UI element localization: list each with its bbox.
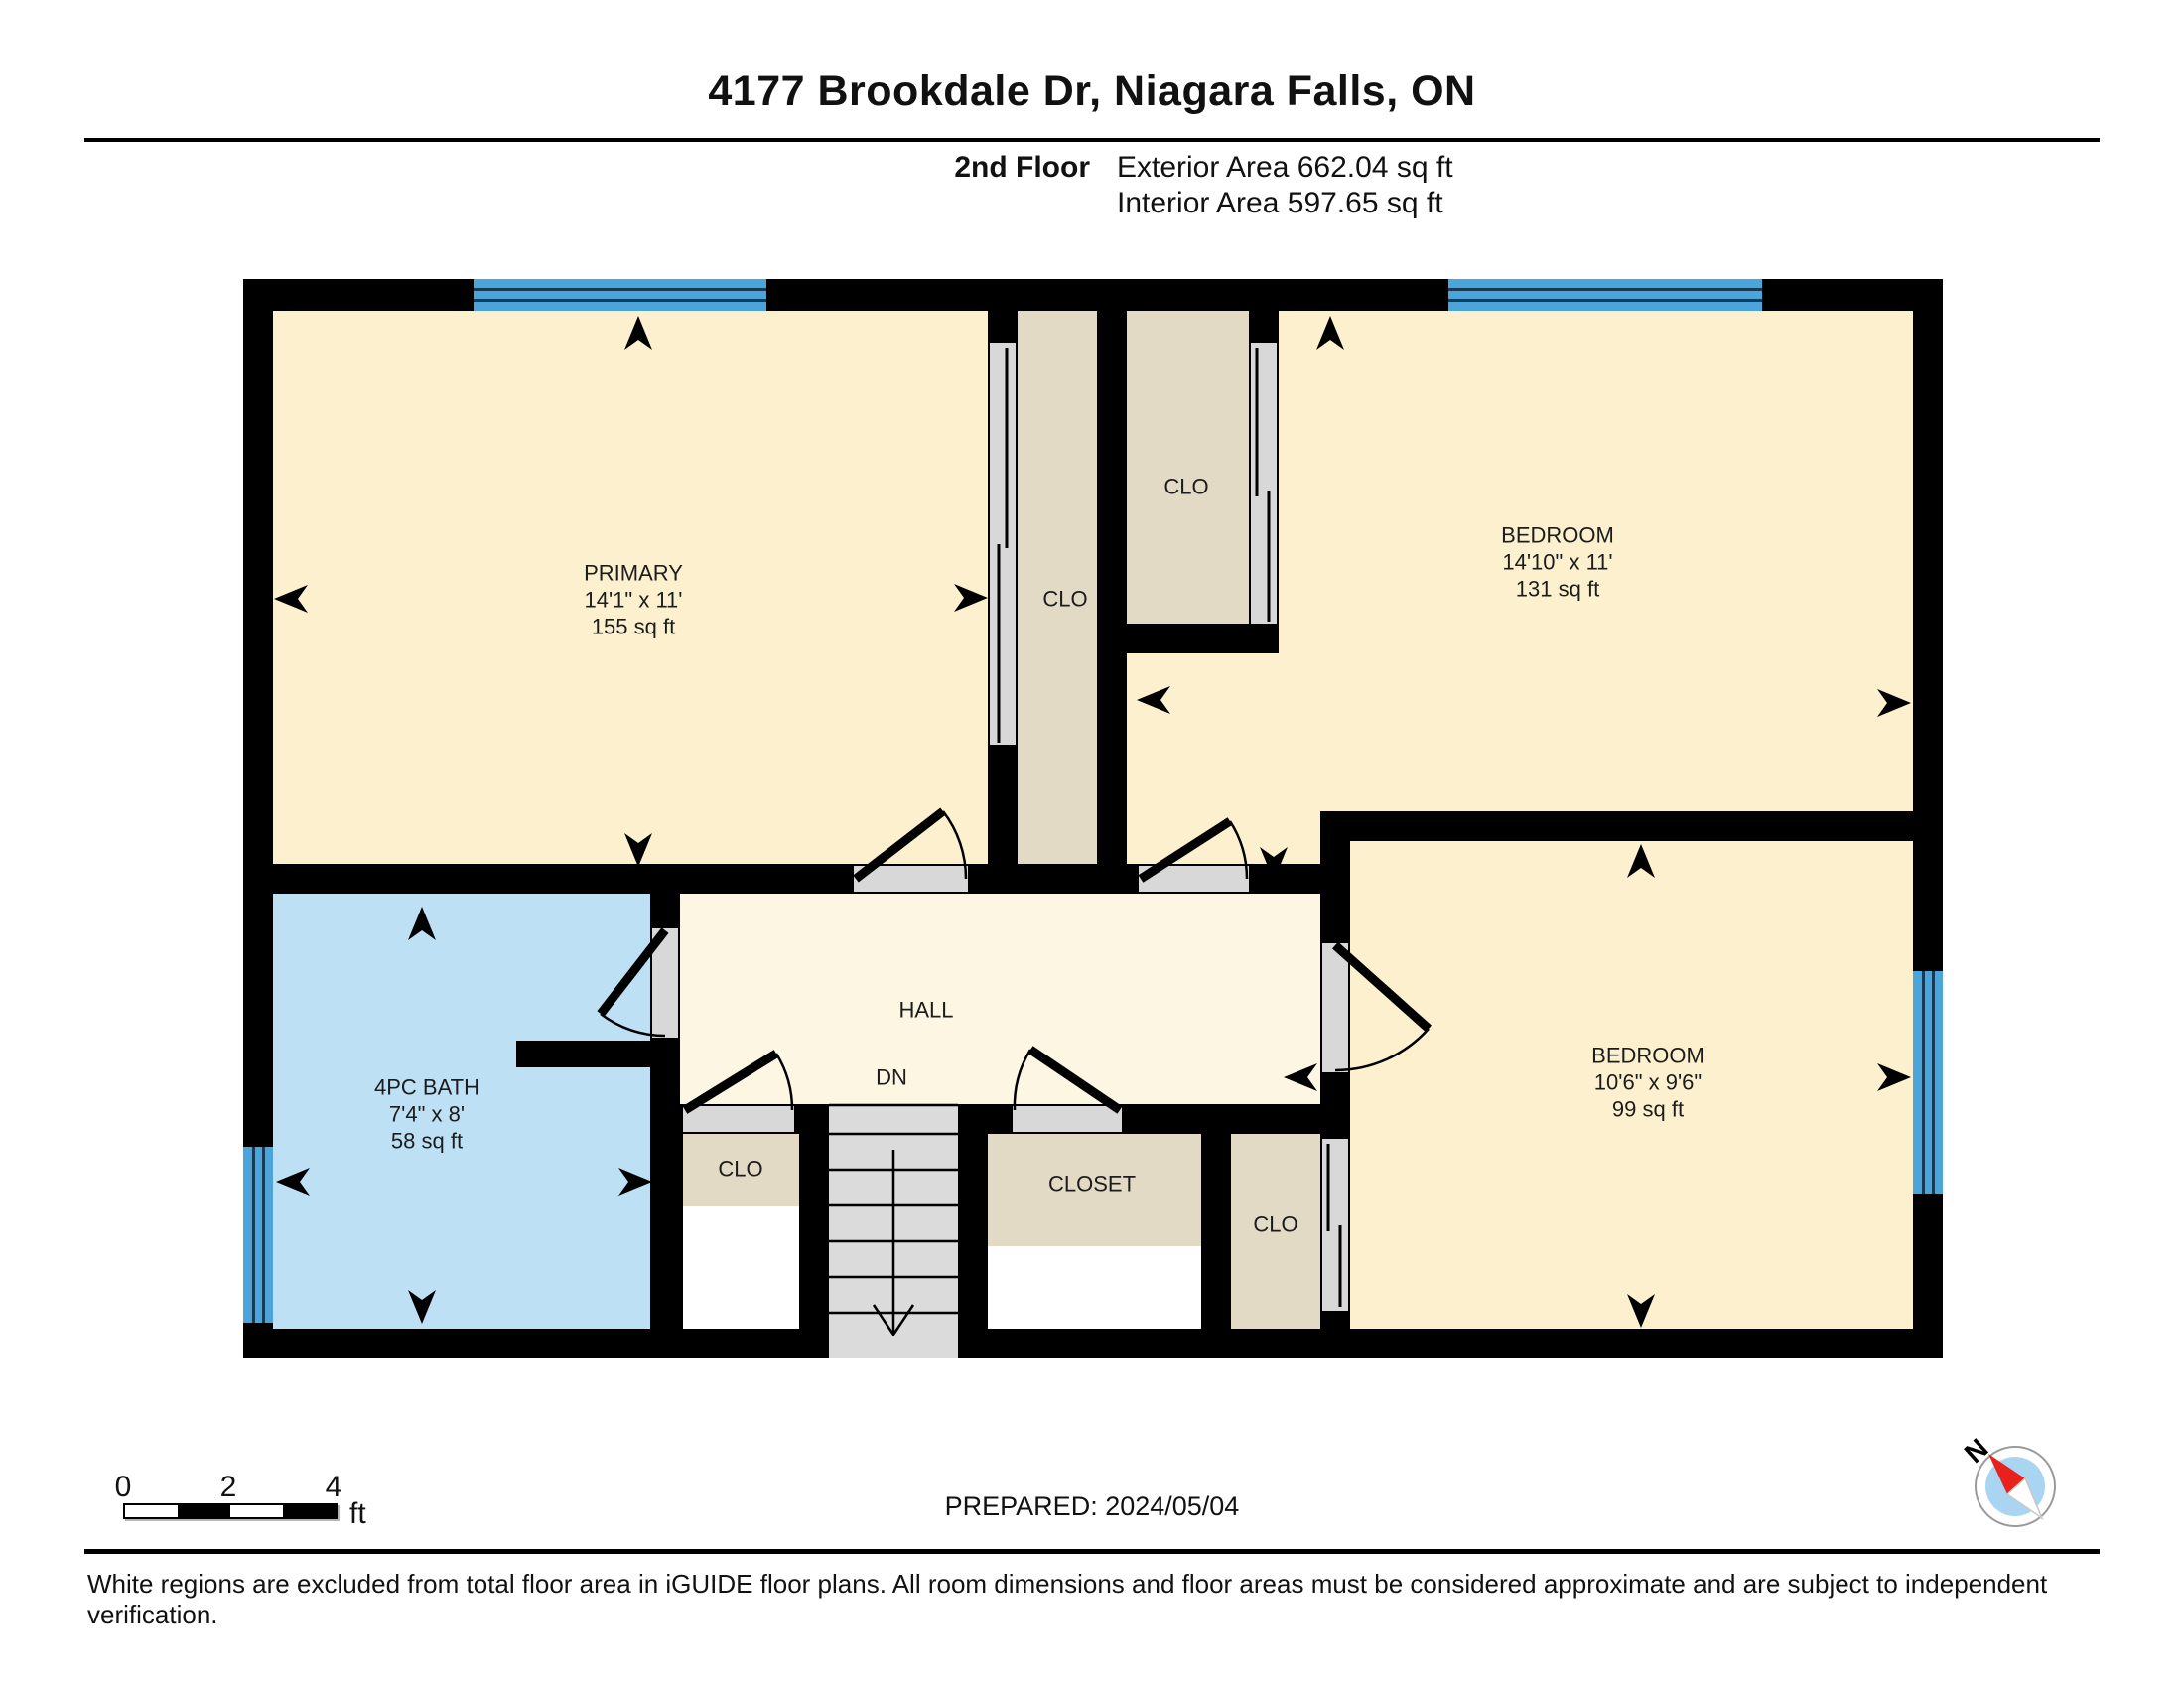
door-threshold-bedroom-top xyxy=(1139,866,1249,892)
footer-divider xyxy=(84,1549,2100,1554)
bath-stub-wall xyxy=(516,1041,650,1067)
scale-tick-4: 4 xyxy=(326,1471,342,1504)
room-bedroom-top-extension xyxy=(1127,653,1913,811)
floorplan-canvas: PRIMARY14'1" x 11'155 sq ft BEDROOM14'10… xyxy=(243,279,1943,1358)
void-under-closet-small xyxy=(683,1206,799,1329)
label-hall: HALL xyxy=(898,997,953,1024)
label-closet-hall-small: CLO xyxy=(718,1156,762,1183)
label-stairs-dn: DN xyxy=(876,1064,907,1091)
sliding-door-closet-center xyxy=(990,343,1016,745)
room-hall xyxy=(680,894,1320,1104)
closet-top xyxy=(1127,311,1249,624)
door-threshold-closet-large xyxy=(1013,1106,1122,1132)
label-bedroom-top: BEDROOM14'10" x 11'131 sq ft xyxy=(1501,522,1614,603)
window-top-bedroom xyxy=(1448,279,1762,311)
floor-label: 2nd Floor xyxy=(844,151,1090,185)
exterior-area: Exterior Area 662.04 sq ft xyxy=(1117,151,1453,185)
label-closet-top: CLO xyxy=(1163,474,1208,500)
compass-north-label: N xyxy=(1959,1433,1994,1470)
door-threshold-primary xyxy=(854,866,968,892)
window-bedroom-bottom xyxy=(1913,971,1943,1194)
stairwell xyxy=(829,1104,958,1358)
scale-unit: ft xyxy=(349,1497,366,1531)
label-closet-center: CLO xyxy=(1042,586,1087,613)
label-bath: 4PC BATH7'4" x 8'58 sq ft xyxy=(374,1074,479,1155)
label-closet-hall-large: CLOSET xyxy=(1048,1171,1136,1197)
void-under-closet-large xyxy=(988,1246,1201,1329)
header-divider xyxy=(84,138,2100,142)
scale-tick-0: 0 xyxy=(115,1471,132,1504)
page-title: 4177 Brookdale Dr, Niagara Falls, ON xyxy=(0,68,2184,116)
disclaimer-text: White regions are excluded from total fl… xyxy=(87,1569,2184,1630)
door-threshold-closet-small xyxy=(683,1106,794,1132)
door-threshold-bath xyxy=(652,928,678,1038)
room-bedroom-top-corner xyxy=(1127,811,1320,864)
window-top-primary xyxy=(474,279,766,311)
interior-area: Interior Area 597.65 sq ft xyxy=(1117,187,1443,220)
window-bath xyxy=(243,1147,273,1323)
label-bedroom-bottom: BEDROOM10'6" x 9'6"99 sq ft xyxy=(1591,1043,1705,1123)
scale-bar xyxy=(123,1503,338,1519)
scale-tick-2: 2 xyxy=(220,1471,237,1504)
door-threshold-bedroom-bottom xyxy=(1322,943,1348,1072)
label-primary: PRIMARY14'1" x 11'155 sq ft xyxy=(584,560,683,640)
sliding-door-closet-bottom xyxy=(1322,1139,1348,1311)
label-closet-bottom: CLO xyxy=(1253,1211,1297,1238)
floorplan-page: 4177 Brookdale Dr, Niagara Falls, ON 2nd… xyxy=(0,0,2184,1688)
sliding-door-closet-top xyxy=(1251,343,1277,624)
